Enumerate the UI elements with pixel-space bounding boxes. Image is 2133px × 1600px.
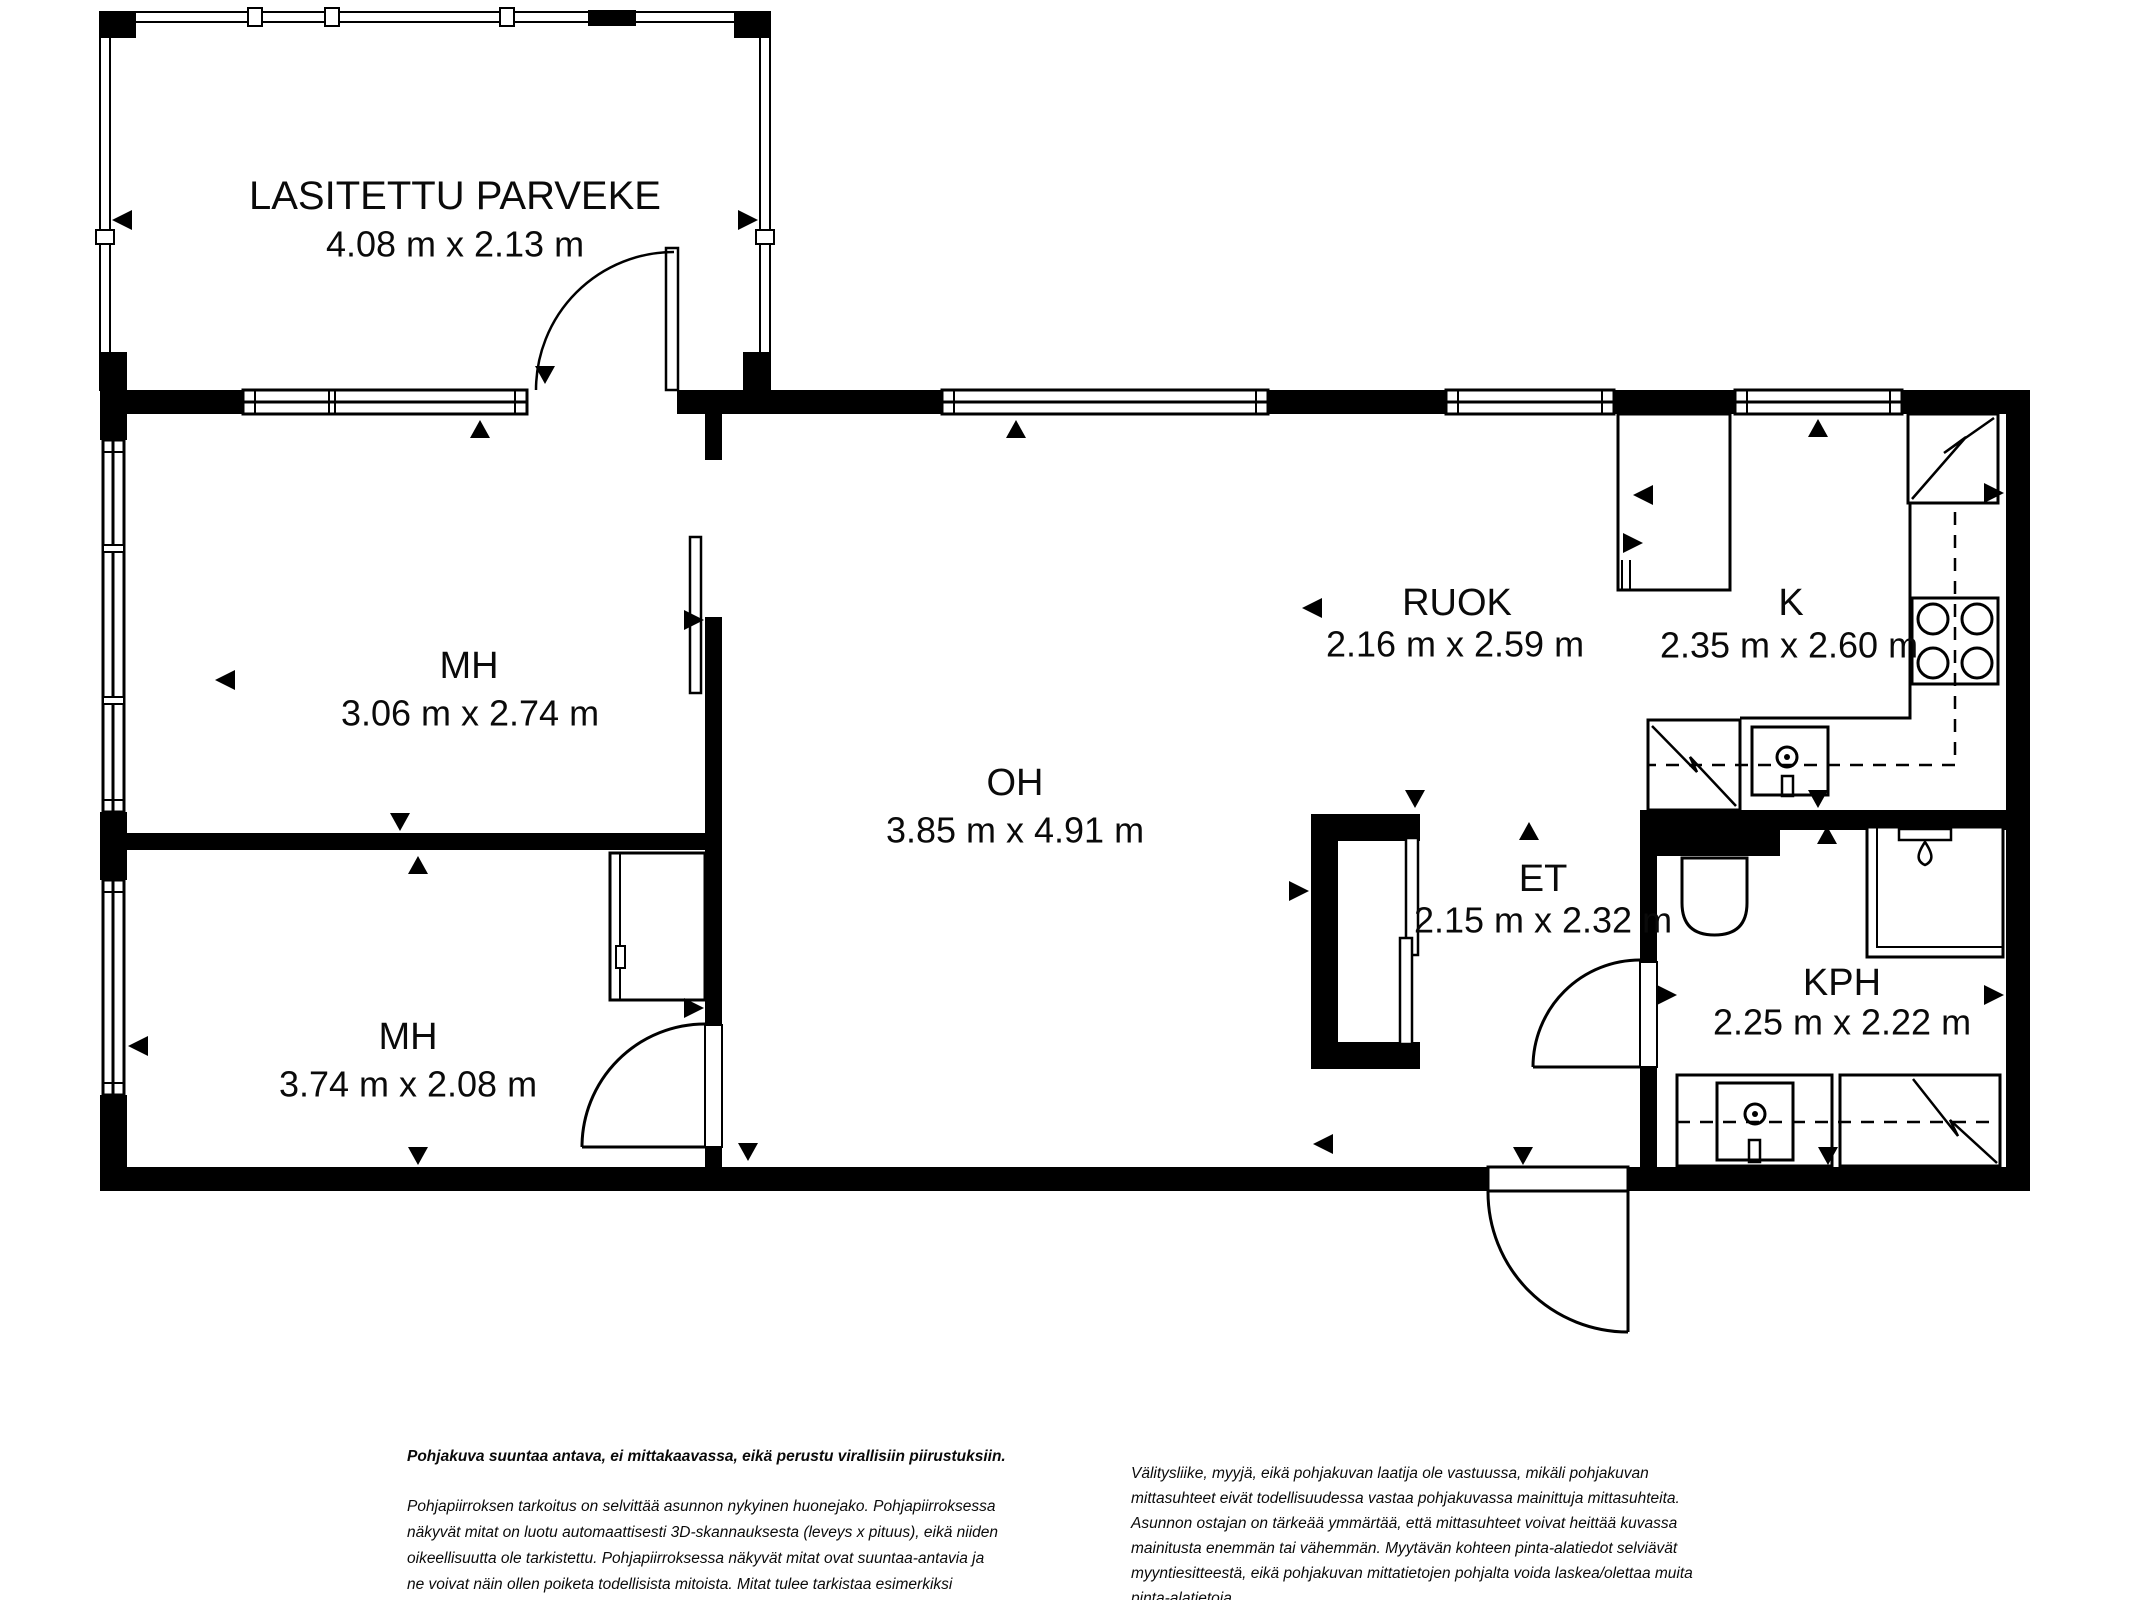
balcony-label: LASITETTU PARVEKE	[249, 174, 661, 218]
room-label-mh2: MH	[378, 1016, 437, 1058]
kitchen-sink	[1752, 727, 1828, 796]
washing-machine	[1840, 1075, 2000, 1166]
counter-edge	[1740, 414, 1910, 718]
room-dims-mh2: 3.74 m x 2.08 m	[279, 1064, 537, 1105]
room-label-kph: KPH	[1803, 962, 1881, 1004]
entry-door	[1488, 1167, 1628, 1332]
room-label-oh: OH	[987, 762, 1044, 804]
measurement-marker-icon	[1808, 790, 1828, 808]
measurement-marker-icon	[1519, 822, 1539, 840]
room-labels: LASITETTU PARVEKE 4.08 m x 2.13 m MH 3.0…	[249, 174, 1971, 1105]
measurement-marker-icon	[1302, 598, 1322, 618]
measurement-marker-icon	[390, 813, 410, 831]
shower-head-icon	[1899, 829, 1951, 840]
disclaimer-right-paragraph: Välitysliike, myyjä, eikä pohjakuvan laa…	[1131, 1461, 1751, 1600]
bedroom2-closet	[610, 853, 705, 1000]
measurement-marker-icon	[408, 856, 428, 874]
room-dims-kph: 2.25 m x 2.22 m	[1713, 1002, 1971, 1043]
window-oh-top	[942, 390, 1268, 414]
measurement-marker-icon	[1984, 985, 2004, 1005]
measurement-marker-icon	[1405, 790, 1425, 808]
tall-cabinet	[1618, 414, 1730, 590]
room-dims-oh: 3.85 m x 4.91 m	[886, 810, 1144, 851]
measurement-marker-icon	[128, 1036, 148, 1056]
measurement-marker-icon	[112, 210, 132, 230]
room-label-et: ET	[1519, 858, 1568, 900]
window-mh1-left	[103, 440, 124, 812]
measurement-marker-icon	[738, 210, 758, 230]
window-ruok-top	[1446, 390, 1614, 414]
kitchen-fixtures	[1618, 414, 1998, 810]
shower	[1867, 827, 2003, 957]
balcony-dims: 4.08 m x 2.13 m	[326, 224, 584, 265]
room-dims-ruok: 2.16 m x 2.59 m	[1326, 624, 1584, 665]
room-label-k: K	[1778, 582, 1803, 624]
bathroom-door	[1533, 960, 1657, 1067]
window-kitchen-top	[1735, 390, 1902, 414]
measurement-marker-icon	[1657, 985, 1677, 1005]
window-mh1-top	[243, 390, 527, 414]
toilet	[1682, 858, 1747, 935]
floor-plan-canvas: LASITETTU PARVEKE 4.08 m x 2.13 m MH 3.0…	[0, 0, 2133, 1600]
floor-plan-page: LASITETTU PARVEKE 4.08 m x 2.13 m MH 3.0…	[0, 0, 2133, 1600]
room-dims-et: 2.15 m x 2.32 m	[1414, 900, 1672, 941]
washbasin	[1677, 1075, 1832, 1166]
measurement-marker-icon	[1808, 419, 1828, 437]
disclaimer-left-paragraph: Pohjapiirroksen tarkoitus on selvittää a…	[407, 1494, 1087, 1600]
measurement-marker-icon	[738, 1143, 758, 1161]
bedroom2-door	[582, 1024, 722, 1147]
measurement-marker-icon	[1006, 420, 1026, 438]
balcony-door	[536, 248, 678, 390]
room-dims-mh1: 3.06 m x 2.74 m	[341, 693, 599, 734]
measurement-marker-icon	[215, 670, 235, 690]
measurement-marker-icon	[408, 1147, 428, 1165]
measurement-marker-icon	[470, 420, 490, 438]
window-mh2-left	[103, 880, 124, 1095]
hallway-wardrobe	[1311, 814, 1420, 1069]
measurement-marker-icon	[1289, 881, 1309, 901]
room-label-ruok: RUOK	[1402, 582, 1512, 624]
measurement-marker-icon	[1513, 1147, 1533, 1165]
room-dims-k: 2.35 m x 2.60 m	[1660, 625, 1918, 666]
measurement-marker-icon	[1313, 1134, 1333, 1154]
room-label-mh1: MH	[439, 645, 498, 687]
disclaimer-bold-line: Pohjakuva suuntaa antava, ei mittakaavas…	[407, 1446, 1107, 1468]
